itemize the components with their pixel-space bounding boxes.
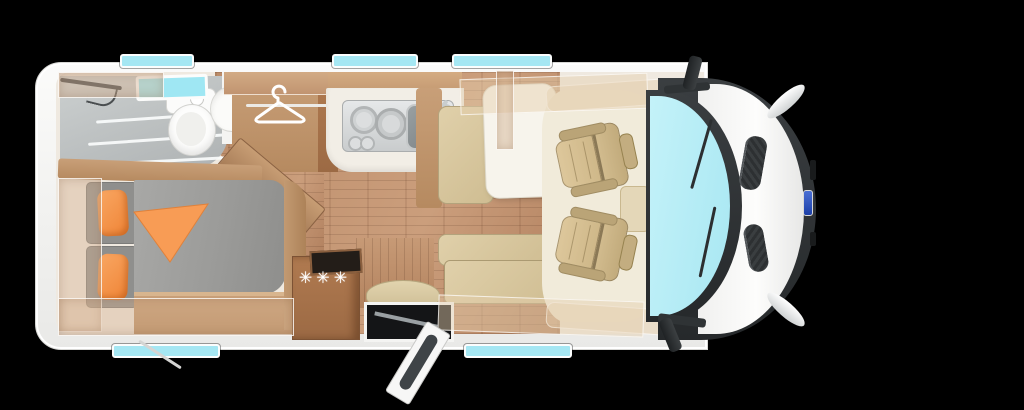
toilet-seat [176,112,206,146]
overhead-locker [437,294,644,337]
clothes-hanger-icon [252,82,308,130]
headlight [762,81,809,122]
bumper-tab [810,232,816,246]
orange-blanket-fold [130,198,216,268]
side-window [452,54,552,68]
side-window [332,54,418,68]
side-window [464,344,572,358]
overhead-locker [58,72,164,98]
side-window [120,54,194,68]
hob-burner-icon [375,108,407,140]
bumper-tab [810,160,816,180]
front-badge [803,190,813,216]
freezer-rating-stars: ✳✳✳ [294,268,356,287]
hob-burner-icon [360,136,375,151]
overhead-locker [496,70,514,150]
hob-burner-icon [350,106,378,134]
floorplan-scene: ✳✳✳ [0,0,1024,410]
overhead-locker [459,73,648,116]
overhead-locker [58,298,294,336]
